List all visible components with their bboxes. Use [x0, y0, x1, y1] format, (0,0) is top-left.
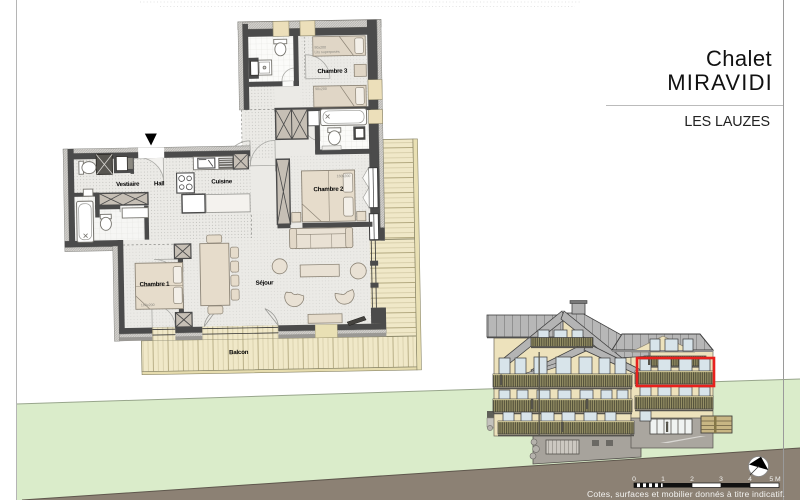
svg-text:Chambre 1: Chambre 1 — [140, 281, 171, 289]
svg-text:Chalet: Chalet — [706, 46, 772, 71]
svg-text:90x200: 90x200 — [315, 87, 327, 91]
svg-text:Hall: Hall — [154, 180, 165, 187]
svg-text:Chambre 2: Chambre 2 — [313, 186, 344, 194]
svg-text:MIRAVIDI: MIRAVIDI — [667, 70, 773, 95]
svg-text:Séjour: Séjour — [256, 279, 275, 286]
svg-text:Vestiaire: Vestiaire — [116, 181, 140, 188]
svg-text:90x200: 90x200 — [314, 45, 326, 49]
svg-text:LES LAUZES: LES LAUZES — [684, 114, 770, 130]
svg-text:5 M: 5 M — [769, 476, 781, 483]
svg-text:Cotes, surfaces et mobilier do: Cotes, surfaces et mobilier donnés à tit… — [587, 489, 785, 499]
svg-text:Cuisine: Cuisine — [211, 178, 233, 185]
svg-text:160x200: 160x200 — [337, 174, 351, 178]
svg-text:1: 1 — [661, 476, 665, 483]
svg-text:Balcon: Balcon — [229, 349, 249, 356]
svg-text:0: 0 — [632, 476, 636, 483]
svg-text:2: 2 — [690, 476, 694, 483]
svg-text:160x200: 160x200 — [141, 303, 155, 307]
svg-text:Chambre 3: Chambre 3 — [317, 68, 348, 76]
svg-text:4: 4 — [748, 476, 752, 483]
svg-text:3: 3 — [719, 476, 723, 483]
svg-text:Lits superposés: Lits superposés — [314, 50, 339, 54]
